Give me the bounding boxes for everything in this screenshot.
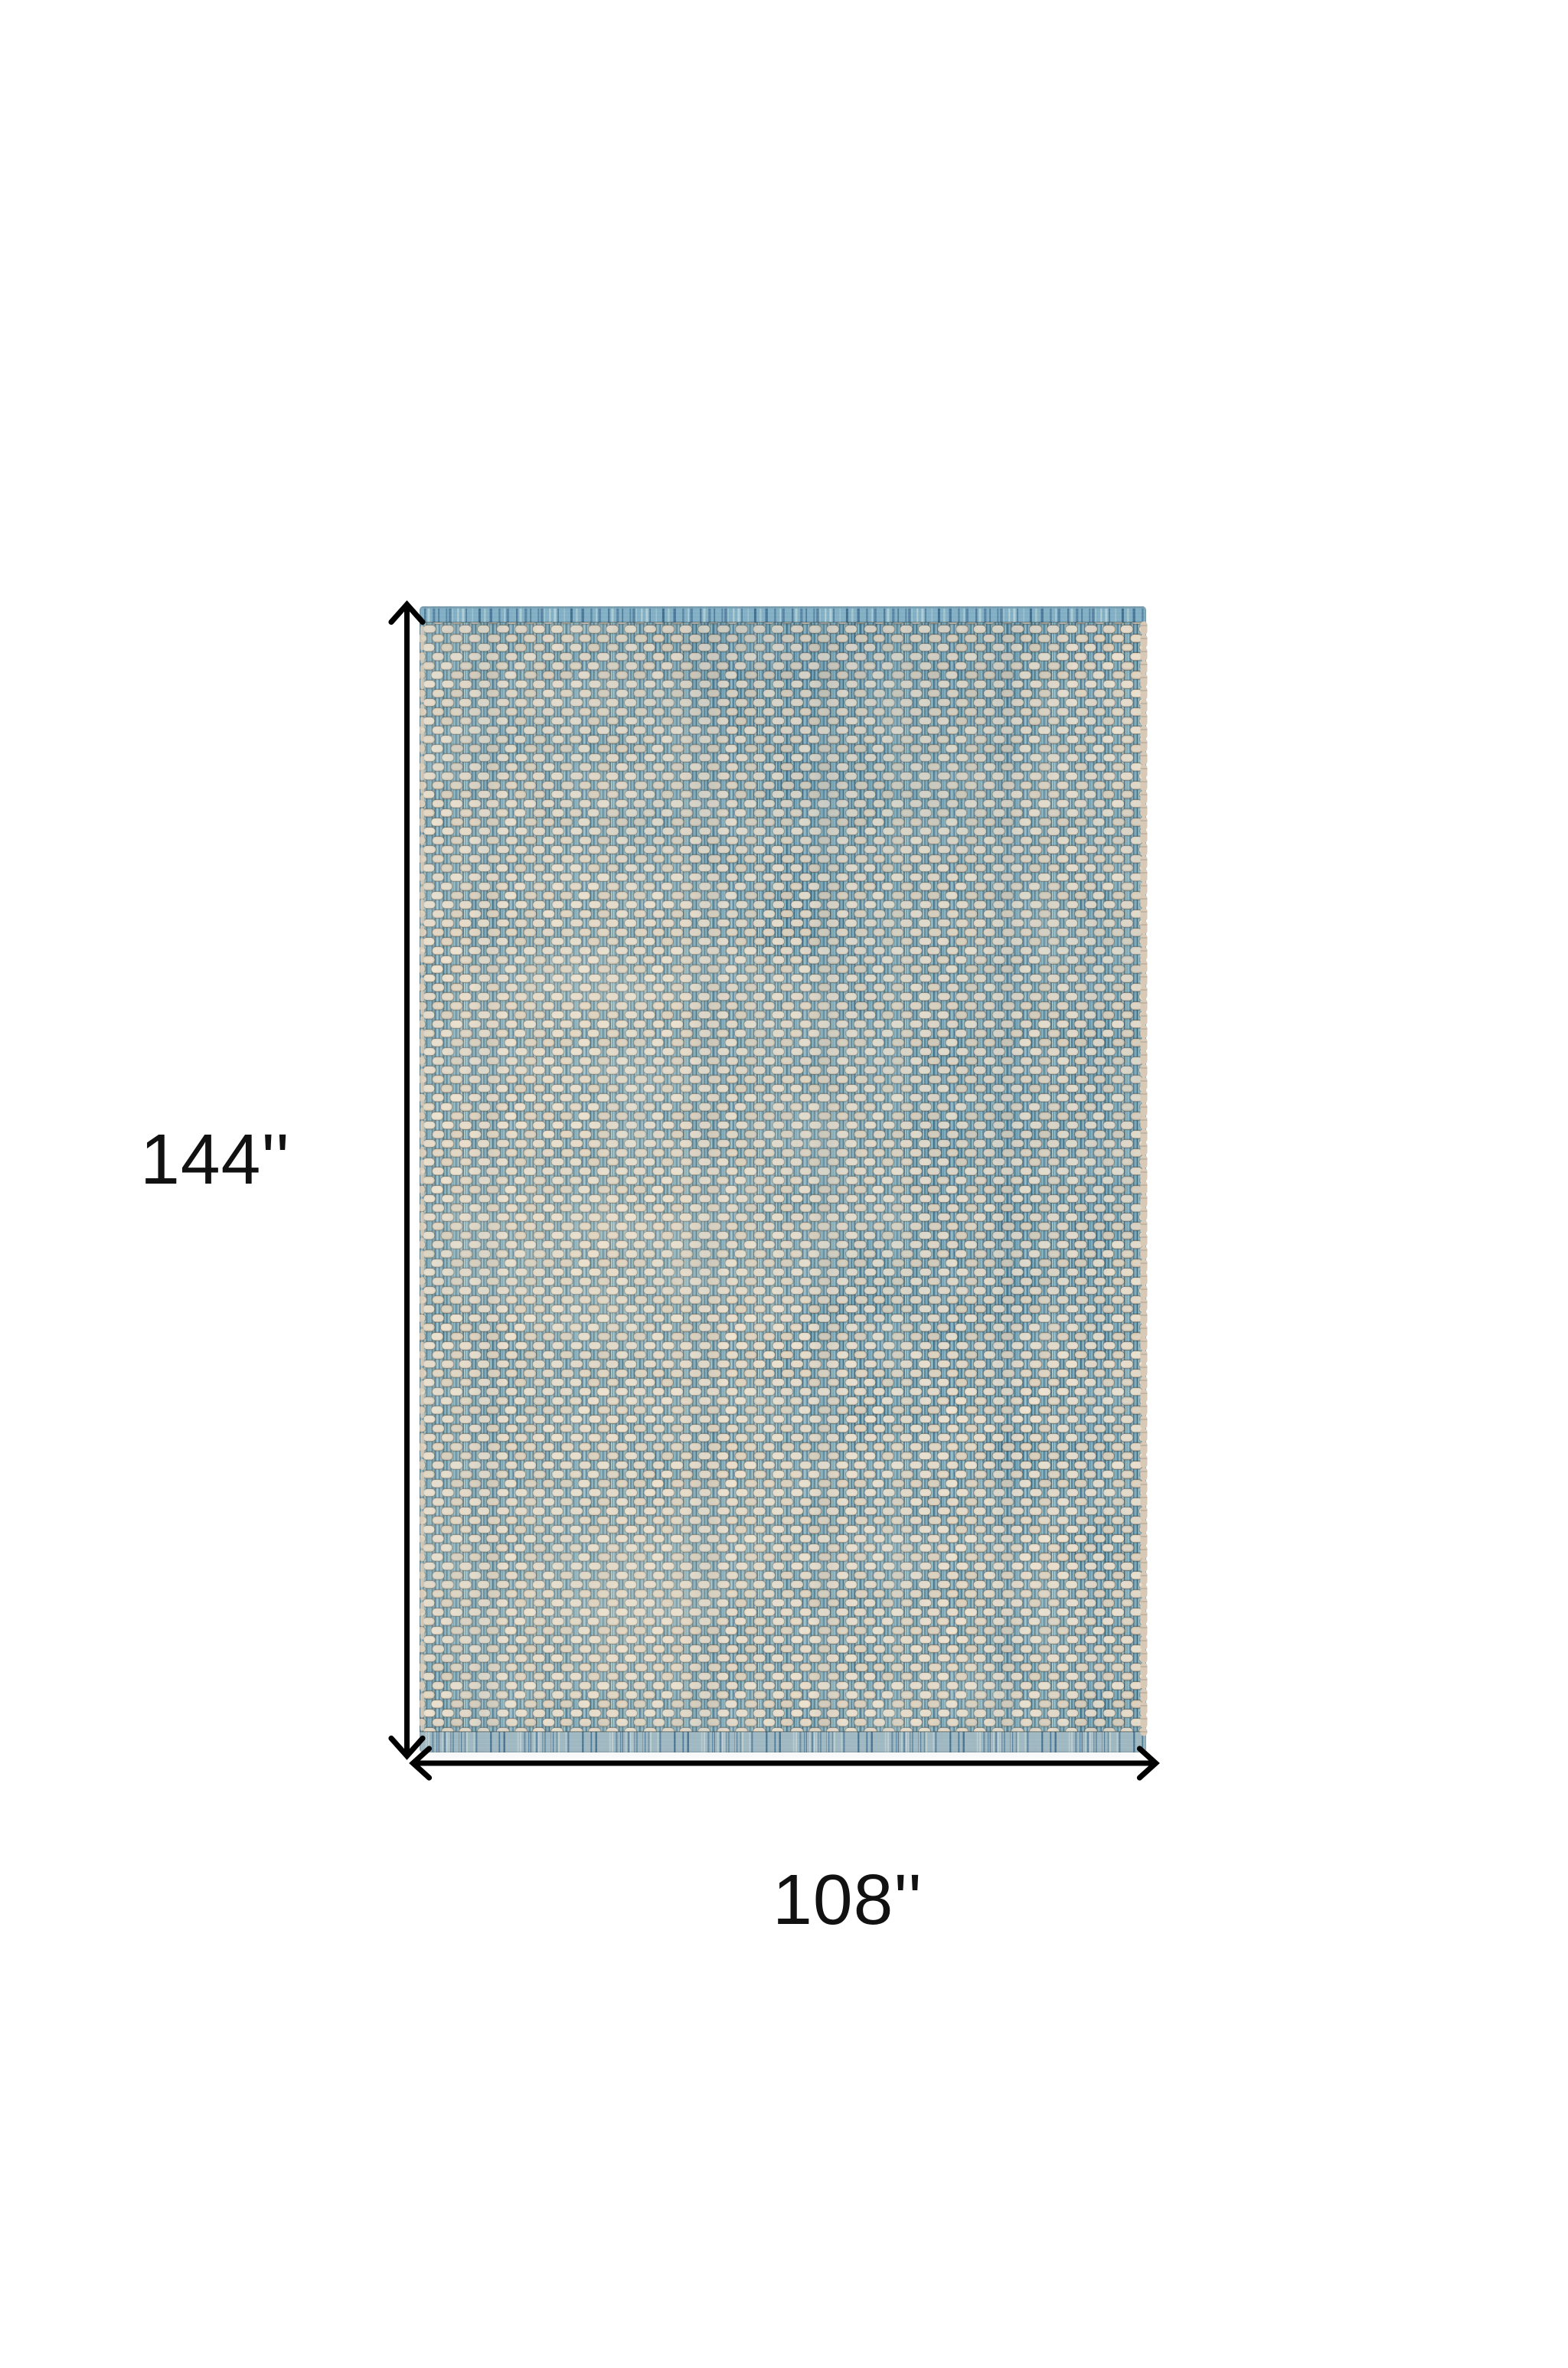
svg-text:144'': 144''	[140, 1119, 290, 1199]
svg-text:108'': 108''	[773, 1860, 923, 1939]
